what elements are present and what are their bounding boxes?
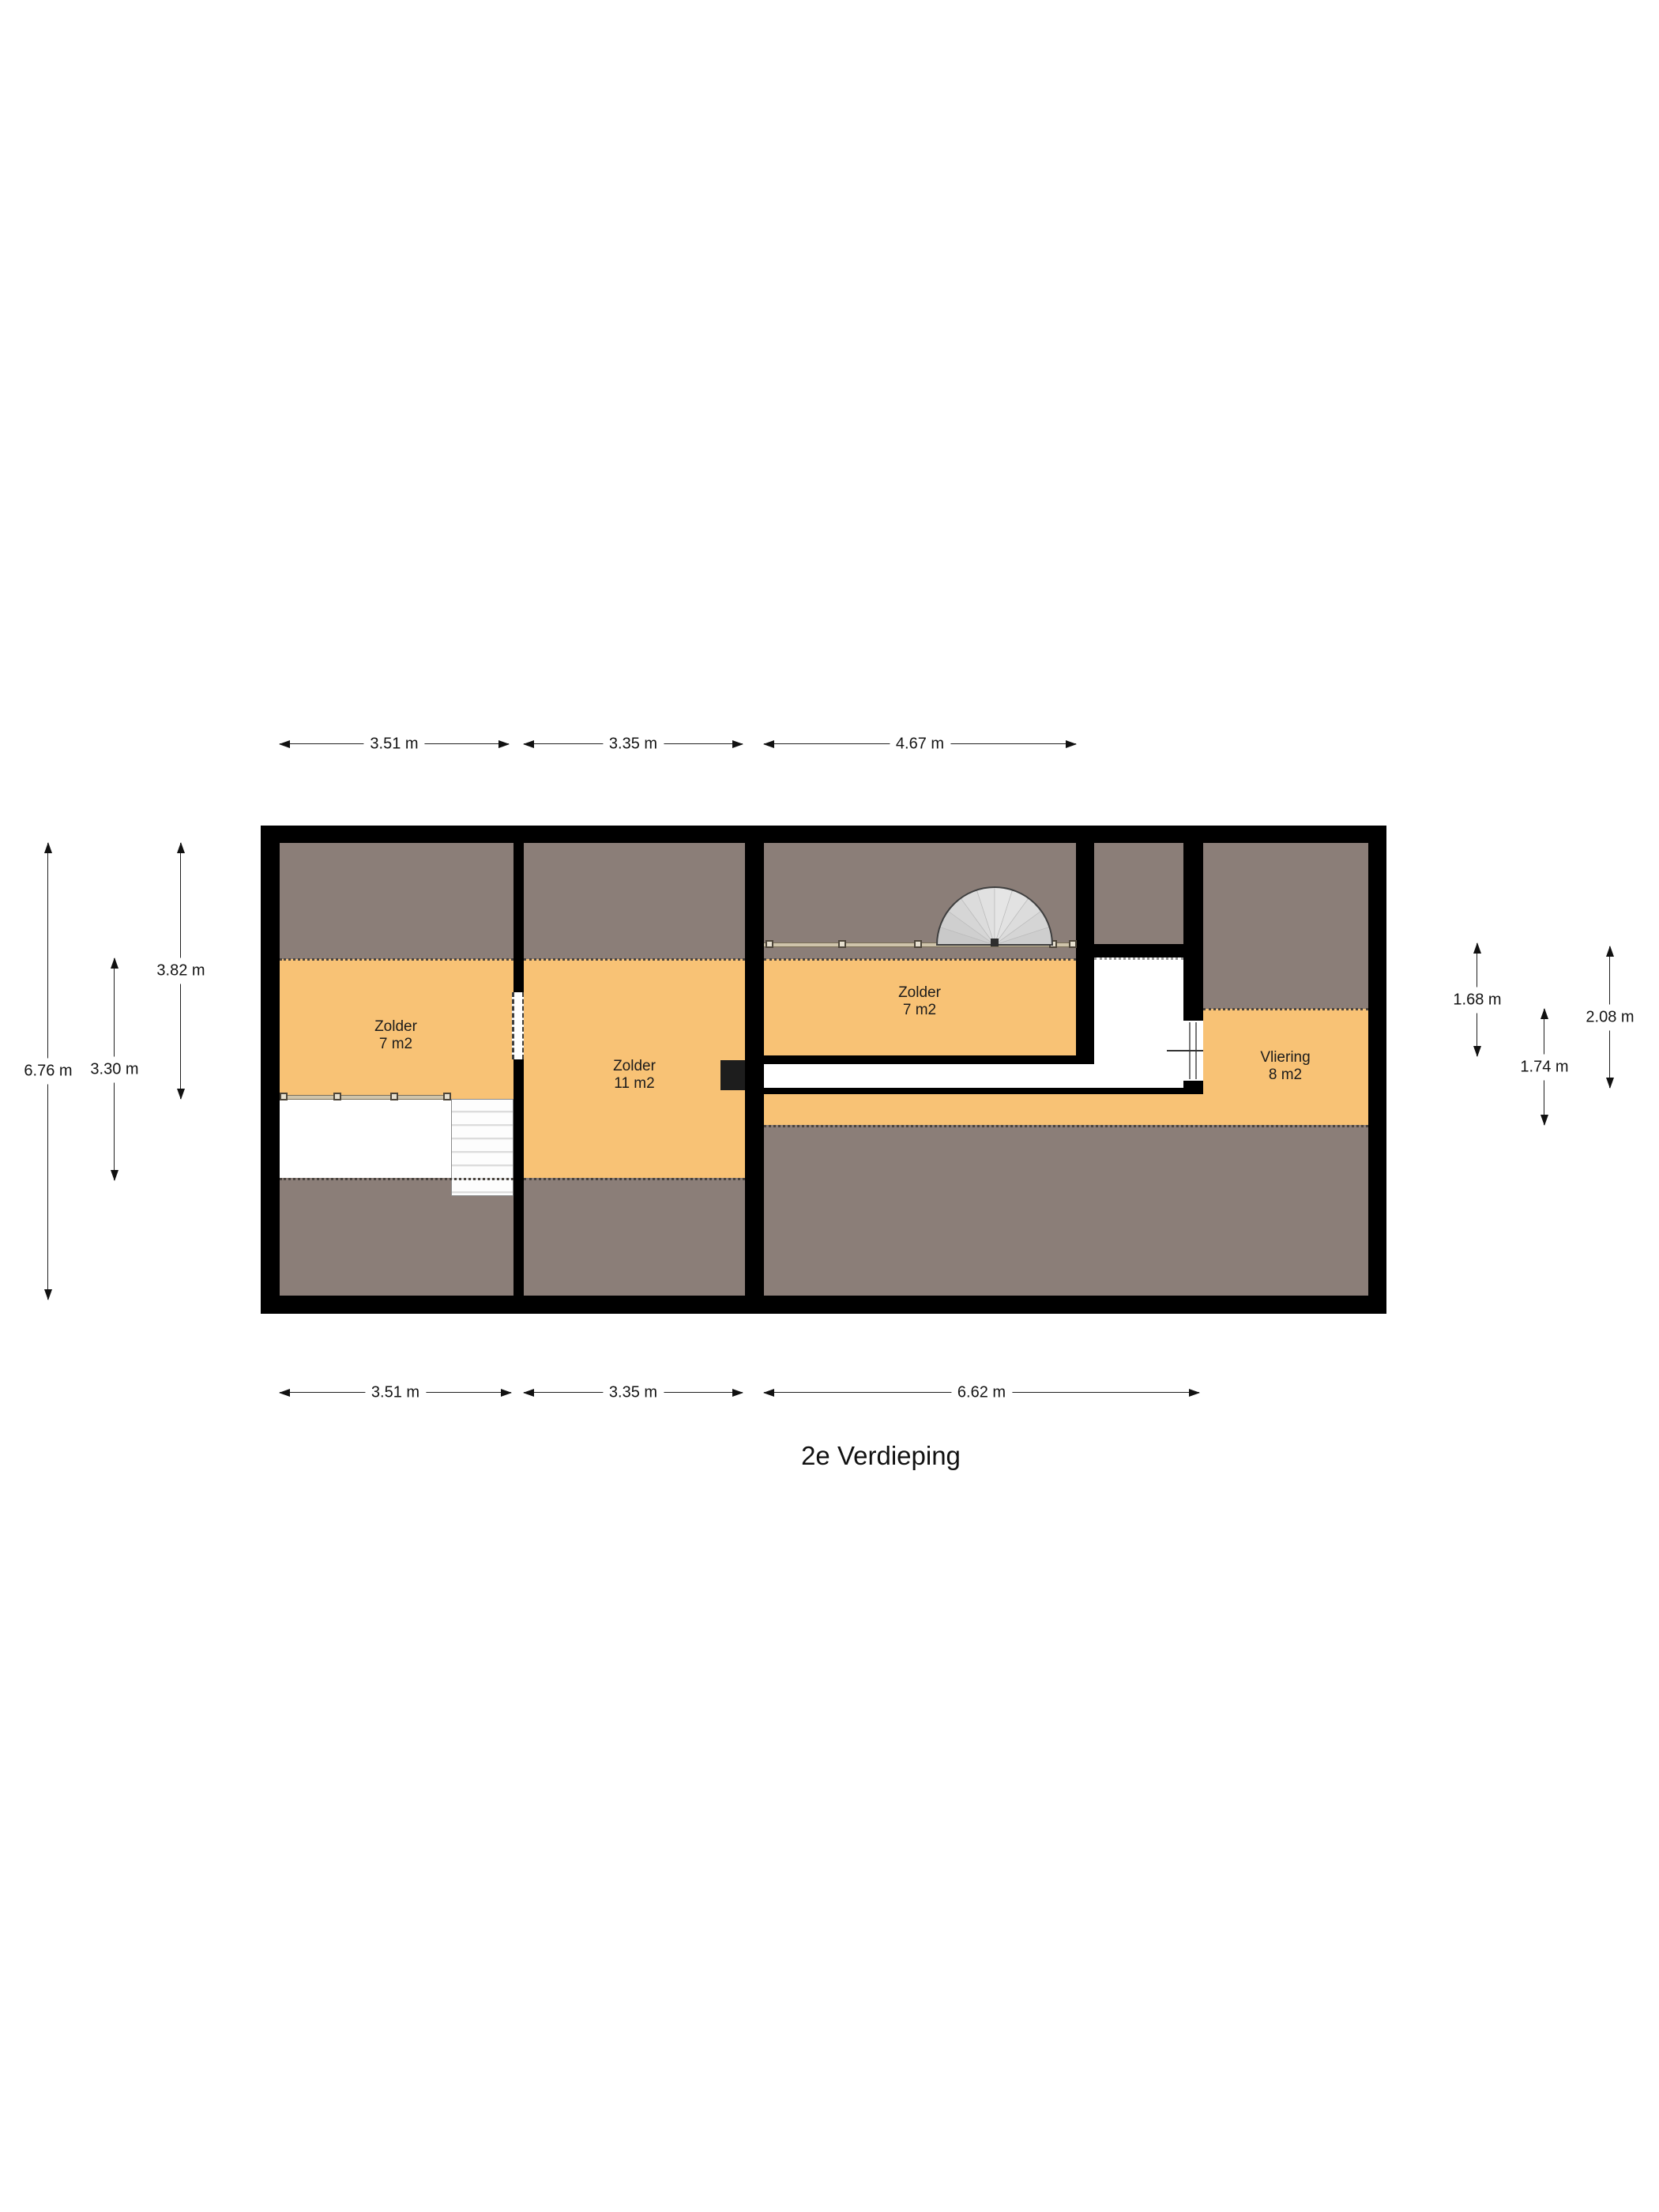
room1-stairwell-void — [280, 1099, 451, 1178]
railing-post — [838, 940, 846, 948]
room1-low-ceiling-top — [280, 843, 513, 959]
vliering-name: Vliering — [1260, 1049, 1310, 1066]
landing-corridor-horizontal — [764, 1064, 1183, 1088]
room3-name: Zolder — [898, 984, 941, 1002]
room2-area: 11 m2 — [613, 1075, 656, 1093]
floor-title: 2e Verdieping — [801, 1441, 961, 1471]
vliering-label: Vliering 8 m2 — [1260, 1049, 1310, 1084]
closet-top — [1094, 843, 1183, 944]
dim-label: 1.74 m — [1518, 1054, 1571, 1080]
dim-label: 2.08 m — [1583, 1004, 1636, 1030]
straight-staircase — [451, 1099, 513, 1196]
railing-post — [390, 1093, 398, 1100]
spiral-staircase — [936, 886, 1053, 948]
stairwell-railing — [280, 1095, 451, 1100]
railing-post — [333, 1093, 341, 1100]
dim-label: 3.35 m — [603, 735, 664, 754]
dim-label: 3.82 m — [154, 958, 207, 984]
room2-label: Zolder 11 m2 — [613, 1058, 656, 1093]
railing-post — [443, 1093, 451, 1100]
railing-post — [280, 1093, 288, 1100]
corridor-ceiling-line — [1094, 957, 1183, 960]
floorplan-canvas: Zolder 7 m2 Zolder 11 m2 Zolder — [0, 0, 1659, 2212]
dim-label: 3.51 m — [363, 735, 424, 754]
room1-area: 7 m2 — [374, 1036, 417, 1053]
dim-label: 6.76 m — [21, 1059, 74, 1085]
railing-post — [1069, 940, 1077, 948]
dim-label: 3.51 m — [365, 1384, 426, 1402]
room1-name: Zolder — [374, 1018, 417, 1036]
bottom-low-ceiling-right — [764, 1125, 1368, 1296]
dim-label: 3.35 m — [603, 1384, 664, 1402]
railing-post — [914, 940, 922, 948]
room1-ceiling-line-bottom — [280, 1178, 513, 1180]
room3-label: Zolder 7 m2 — [898, 984, 941, 1019]
floorplan-page: { "title": "2e Verdieping", "rooms": [ {… — [0, 0, 1659, 2212]
room2-low-ceiling-bottom — [524, 1178, 745, 1296]
room1-label: Zolder 7 m2 — [374, 1018, 417, 1053]
room3-ceiling-line — [764, 958, 1076, 961]
bottom-ceiling-line — [764, 1125, 1368, 1127]
chimney-block — [720, 1060, 745, 1090]
room3-area: 7 m2 — [898, 1002, 941, 1019]
vliering-ceiling-line-top — [1203, 1008, 1368, 1010]
room2-name: Zolder — [613, 1058, 656, 1075]
room2-low-ceiling-top — [524, 843, 745, 959]
room1-ceiling-line-top — [280, 958, 513, 961]
landing-corridor-vertical — [1094, 957, 1183, 1064]
railing-post — [766, 940, 773, 948]
room2-ceiling-line-bottom — [524, 1178, 745, 1180]
dim-label: 6.62 m — [951, 1384, 1012, 1402]
room2-ceiling-line-top — [524, 958, 745, 961]
vliering-low-ceiling-top — [1203, 843, 1368, 1009]
sliding-door-room1-room2 — [512, 992, 525, 1059]
dim-label: 4.67 m — [890, 735, 950, 754]
dim-label: 3.30 m — [88, 1056, 141, 1082]
vliering-area: 8 m2 — [1260, 1066, 1310, 1084]
dim-label: 1.68 m — [1450, 987, 1503, 1013]
vliering-floor-strip — [764, 1094, 1368, 1125]
